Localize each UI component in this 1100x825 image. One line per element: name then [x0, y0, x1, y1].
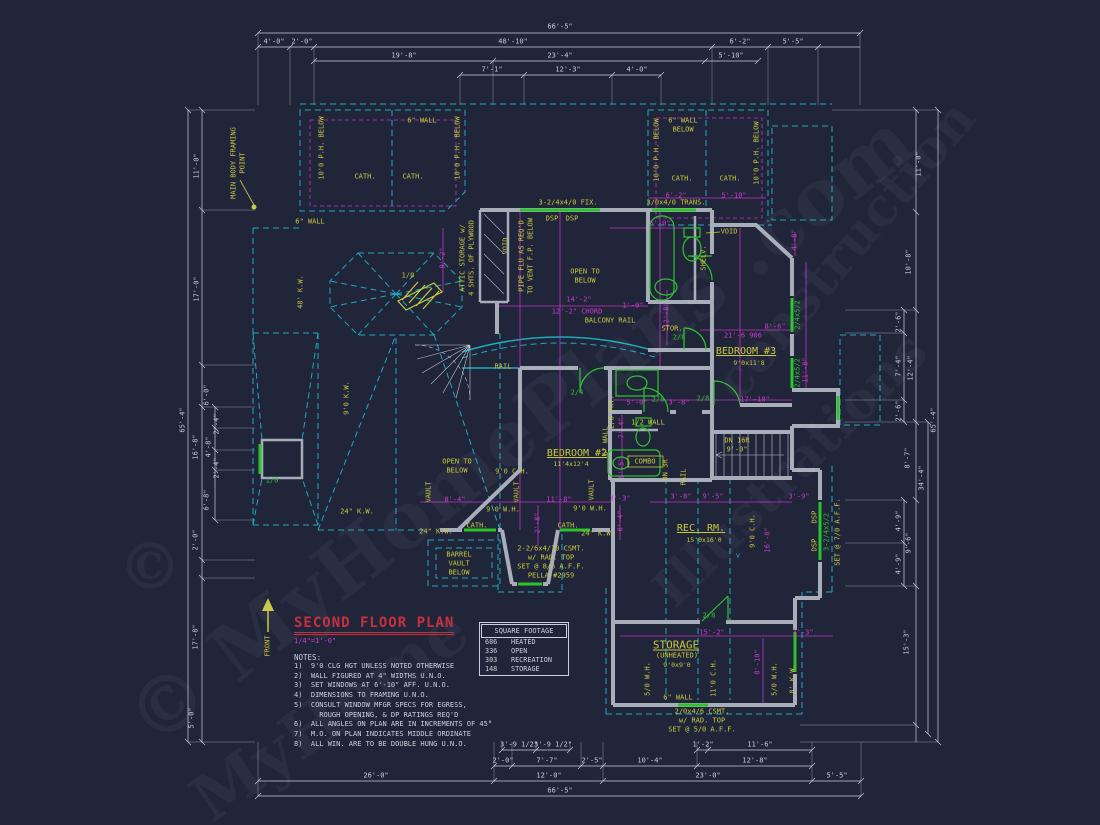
magenta-dashed-lines — [310, 118, 762, 218]
floor-plan-sheet: © MyHomePlans .comconstructionIllustrati… — [0, 0, 1100, 825]
note-line: 4) DIMENSIONS TO FRAMING U.N.O. — [294, 691, 514, 701]
square-footage-row: 686HEATED — [481, 638, 567, 647]
plan-linework — [0, 0, 1100, 825]
square-footage-row: 303RECREATION — [481, 656, 567, 665]
note-line: 6) ALL ANGLES ON PLAN ARE IN INCREMENTS … — [294, 720, 514, 730]
front-arrow-icon — [262, 598, 274, 611]
plan-title: SECOND FLOOR PLAN — [294, 615, 454, 635]
note-line: 5) CONSULT WINDOW MFGR SPECS FOR EGRESS, — [294, 701, 514, 711]
stair-treads — [415, 345, 788, 476]
note-line: 7) M.O. ON PLAN INDICATES MIDDLE ORDINAT… — [294, 730, 514, 740]
square-footage-row: 148STORAGE — [481, 665, 567, 674]
square-footage-row: 336OPEN — [481, 647, 567, 656]
note-line: ROUGH OPENING, & DP RATINGS REQ'D — [294, 711, 514, 721]
square-footage-rows: 686HEATED336OPEN303RECREATION148STORAGE — [481, 638, 567, 674]
square-footage-table: SQUARE FOOTAGE 686HEATED336OPEN303RECREA… — [479, 622, 569, 676]
note-line: 8) ALL WIN. ARE TO BE DOUBLE HUNG U.N.O. — [294, 740, 514, 750]
note-line: 3) SET WINDOWS AT 6'-10" AFF. U.N.O. — [294, 681, 514, 691]
square-footage-header: SQUARE FOOTAGE — [481, 624, 567, 638]
